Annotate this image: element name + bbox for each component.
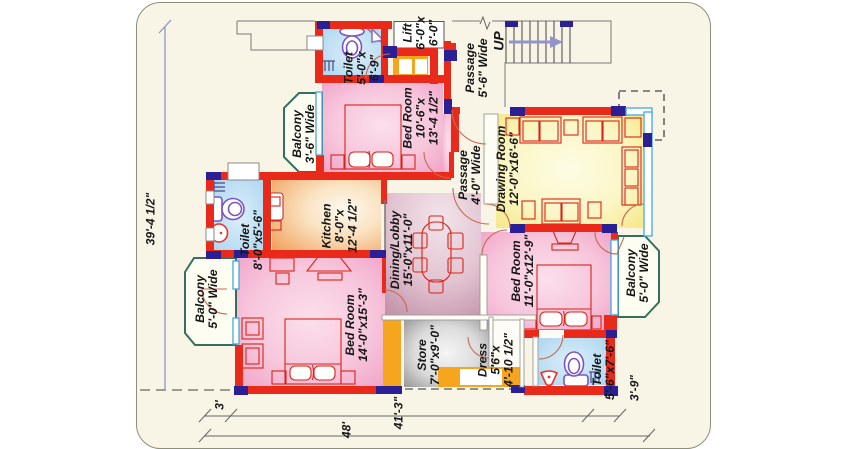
svg-text:Passage: Passage	[456, 150, 470, 200]
svg-text:39'-4 1/2": 39'-4 1/2"	[143, 192, 157, 245]
svg-text:Bed Room: Bed Room	[343, 294, 357, 356]
svg-text:6'-0": 6'-0"	[426, 20, 440, 47]
svg-text:3'-6" Wide: 3'-6" Wide	[303, 104, 317, 163]
svg-text:14'-0"x15'-3": 14'-0"x15'-3"	[356, 288, 370, 362]
svg-text:Kitchen: Kitchen	[319, 203, 333, 248]
svg-text:4'-0" Wide: 4'-0" Wide	[469, 145, 483, 205]
svg-text:Balcony: Balcony	[193, 274, 207, 323]
svg-text:Bed Room: Bed Room	[400, 87, 414, 149]
svg-text:48': 48'	[339, 421, 353, 439]
svg-text:Bed Room: Bed Room	[509, 240, 523, 302]
svg-text:Toilet: Toilet	[341, 51, 355, 84]
svg-text:6'-9": 6'-9"	[367, 55, 381, 82]
svg-text:Balcony: Balcony	[290, 109, 304, 158]
svg-text:5'-0" Wide: 5'-0" Wide	[206, 269, 220, 328]
svg-text:5'6"x: 5'6"x	[488, 344, 502, 374]
svg-text:Toilet: Toilet	[590, 353, 604, 386]
svg-text:Store: Store	[415, 339, 429, 371]
svg-text:Lift: Lift	[400, 23, 414, 43]
svg-text:12'-4 1/2": 12'-4 1/2"	[345, 199, 359, 253]
svg-text:4'-10 1/2": 4'-10 1/2"	[501, 333, 515, 388]
svg-text:Passage: Passage	[463, 43, 477, 93]
svg-text:10'-6"x: 10'-6"x	[413, 97, 427, 138]
svg-text:15'-0"x11'-0": 15'-0"x11'-0"	[401, 214, 415, 287]
svg-text:7'-0"x9'-0": 7'-0"x9'-0"	[428, 325, 442, 385]
svg-text:Balcony: Balcony	[624, 248, 638, 297]
svg-text:UP: UP	[490, 31, 506, 51]
svg-text:6'-0"x: 6'-0"x	[413, 15, 427, 50]
svg-text:Drawing Room: Drawing Room	[494, 126, 508, 213]
svg-text:11'-0"x12'-9": 11'-0"x12'-9"	[522, 235, 536, 308]
svg-text:Dress: Dress	[475, 343, 489, 377]
svg-text:8'-0"x: 8'-0"x	[332, 208, 346, 243]
svg-text:5'-0" Wide: 5'-0" Wide	[637, 243, 651, 302]
svg-text:8'-0"x5'-6": 8'-0"x5'-6"	[251, 210, 265, 270]
svg-text:3'-9": 3'-9"	[627, 375, 641, 401]
svg-text:5'-6" Wide: 5'-6" Wide	[476, 38, 490, 97]
svg-text:13'-4 1/2": 13'-4 1/2"	[426, 91, 440, 145]
svg-text:12'-0"x16'-6": 12'-0"x16'-6"	[507, 132, 521, 206]
svg-text:5'-6"x7'-6": 5'-6"x7'-6"	[603, 340, 617, 400]
svg-text:Toilet: Toilet	[238, 223, 252, 256]
svg-text:5'-0"x: 5'-0"x	[354, 50, 368, 85]
svg-text:3': 3'	[212, 399, 226, 410]
svg-text:Dining/Lobby: Dining/Lobby	[388, 210, 402, 290]
svg-text:41'-3": 41'-3"	[391, 396, 405, 430]
